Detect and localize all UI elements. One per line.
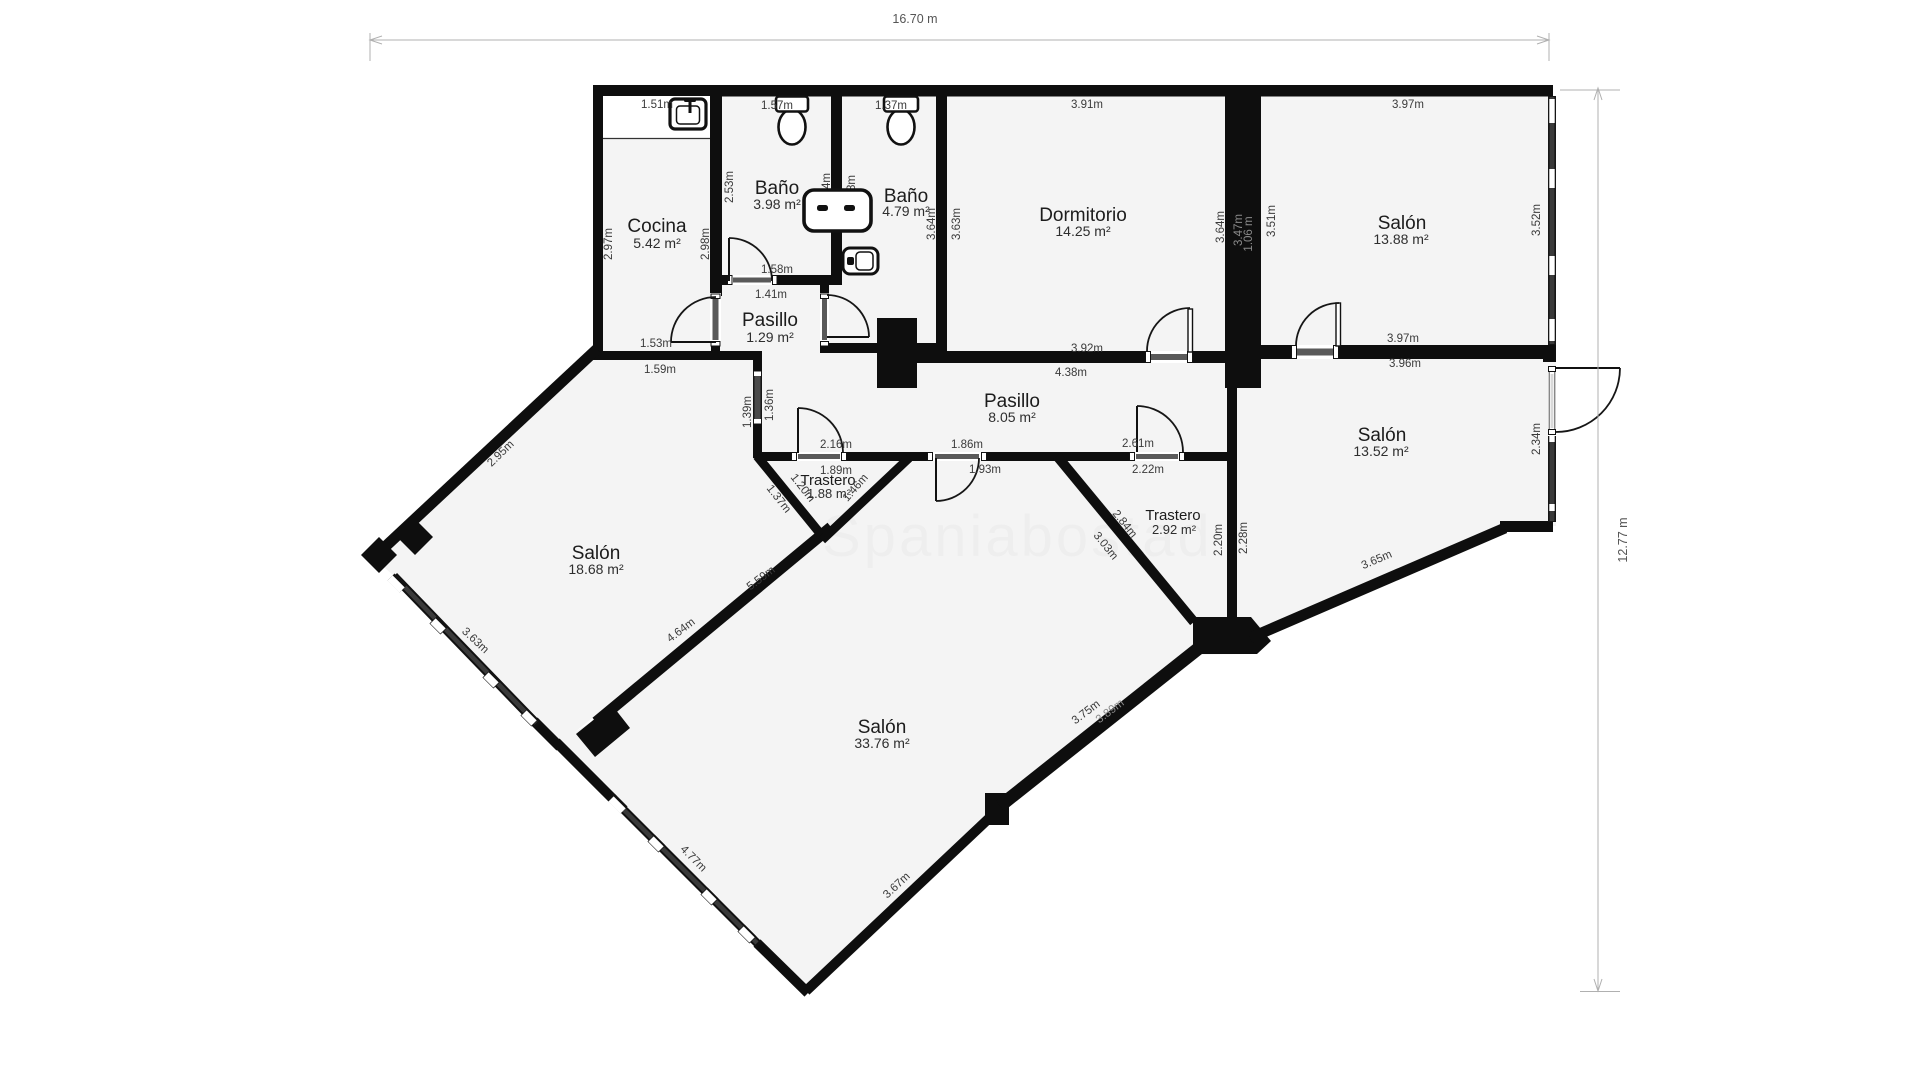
svg-text:2.92 m²: 2.92 m²: [1152, 522, 1197, 537]
svg-text:8.05 m²: 8.05 m²: [988, 409, 1036, 425]
svg-text:18.68 m²: 18.68 m²: [568, 561, 624, 577]
svg-text:1.59m: 1.59m: [644, 364, 676, 376]
svg-text:2.28m: 2.28m: [1238, 522, 1250, 554]
svg-text:1.37m: 1.37m: [875, 100, 907, 112]
svg-text:13.88 m²: 13.88 m²: [1373, 231, 1429, 247]
svg-text:1.41m: 1.41m: [755, 289, 787, 301]
svg-text:1.58m: 1.58m: [761, 264, 793, 276]
svg-text:3.97m: 3.97m: [1392, 99, 1424, 111]
svg-text:1.53m: 1.53m: [640, 338, 672, 350]
svg-text:4.79 m²: 4.79 m²: [882, 203, 930, 219]
svg-text:3.97m: 3.97m: [1387, 333, 1419, 345]
svg-text:1.06 m: 1.06 m: [1243, 216, 1255, 251]
svg-text:3.63m: 3.63m: [951, 208, 963, 240]
svg-text:1.29 m²: 1.29 m²: [746, 329, 794, 345]
svg-text:1.51m: 1.51m: [641, 99, 673, 111]
svg-text:Cocina: Cocina: [627, 216, 687, 237]
svg-text:1.57m: 1.57m: [761, 100, 793, 112]
svg-text:3.51m: 3.51m: [1266, 205, 1278, 237]
svg-text:3.91m: 3.91m: [1071, 99, 1103, 111]
svg-text:1.86m: 1.86m: [951, 439, 983, 451]
svg-text:3.52m: 3.52m: [1531, 204, 1543, 236]
svg-text:4.38m: 4.38m: [1055, 367, 1087, 379]
svg-text:12.77 m: 12.77 m: [1616, 517, 1630, 562]
svg-text:1.93m: 1.93m: [969, 464, 1001, 476]
svg-text:2.61m: 2.61m: [1122, 438, 1154, 450]
svg-text:1.36m: 1.36m: [764, 389, 776, 421]
svg-text:3.64m: 3.64m: [926, 208, 938, 240]
svg-text:2.20m: 2.20m: [1213, 524, 1225, 556]
svg-text:2.34m: 2.34m: [1531, 423, 1543, 455]
svg-text:2.22m: 2.22m: [1132, 464, 1164, 476]
svg-text:3.92m: 3.92m: [1071, 343, 1103, 355]
svg-text:14.25 m²: 14.25 m²: [1055, 223, 1111, 239]
svg-text:33.76 m²: 33.76 m²: [854, 735, 910, 751]
svg-text:16.70 m: 16.70 m: [892, 12, 937, 26]
svg-text:5.42 m²: 5.42 m²: [633, 235, 681, 251]
svg-text:1.89m: 1.89m: [820, 465, 852, 477]
svg-text:2.97m: 2.97m: [603, 228, 615, 260]
svg-text:3.98 m²: 3.98 m²: [753, 196, 801, 212]
svg-text:Pasillo: Pasillo: [742, 310, 798, 331]
svg-text:2.16m: 2.16m: [820, 439, 852, 451]
svg-text:13.52 m²: 13.52 m²: [1353, 443, 1409, 459]
svg-text:3.64m: 3.64m: [1215, 211, 1227, 243]
svg-text:1.39m: 1.39m: [742, 396, 754, 428]
svg-text:2.53m: 2.53m: [724, 171, 736, 203]
svg-text:3.96m: 3.96m: [1389, 358, 1421, 370]
svg-text:2.98m: 2.98m: [700, 228, 712, 260]
